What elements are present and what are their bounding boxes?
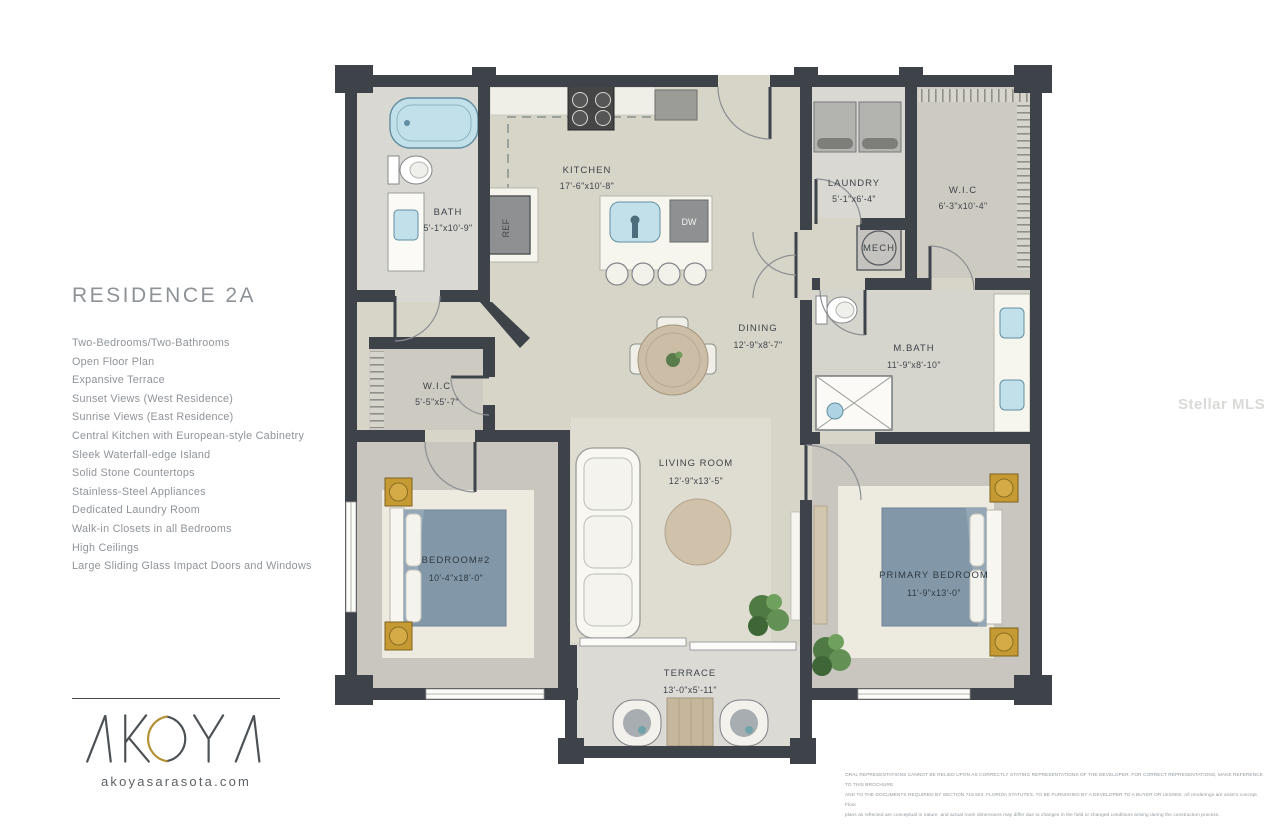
nightstand-icon (385, 478, 412, 506)
room-dims-terrace: 13'-0"x5'-11" (663, 685, 717, 695)
closet-hatch (370, 351, 384, 428)
sliding-glass-door (690, 642, 796, 650)
shower-drain (827, 403, 843, 419)
floor-plan: REF DW MECH (330, 60, 1070, 770)
sofa-cushion (584, 516, 632, 568)
akoya-logo-icon (73, 709, 279, 767)
tub-drain (404, 120, 410, 126)
logo-gold-crescent (148, 717, 167, 762)
pillow (970, 514, 984, 566)
terrace-furniture (613, 698, 768, 746)
room-dims-laundry: 5'-1"x6'-4" (832, 194, 876, 204)
page-title: RESIDENCE 2A (72, 284, 372, 308)
entry-opening (718, 75, 770, 87)
legal-disclaimer: ORAL REPRESENTATIONS CANNOT BE RELIED UP… (845, 770, 1265, 820)
centerpiece-leaf (676, 352, 683, 359)
brand-website: akoyasarasota.com (72, 774, 280, 789)
feature-item: Stainless-Steel Appliances (72, 483, 372, 502)
headboard (390, 508, 404, 628)
disclaimer-line: ORAL REPRESENTATIONS CANNOT BE RELIED UP… (845, 770, 1265, 790)
disclaimer-line: AND TO THE DOCUMENTS REQUIRED BY SECTION… (845, 790, 1265, 810)
residence-info-panel: RESIDENCE 2A Two-Bedrooms/Two-Bathrooms … (72, 284, 372, 576)
room-dims-primary: 11'-9"x13'-0" (907, 588, 961, 598)
coffee-table-icon (665, 499, 731, 565)
nightstand-icon (990, 628, 1018, 656)
closet-hatch (918, 89, 1030, 102)
feature-item: Expansive Terrace (72, 371, 372, 390)
room-dims-mbath: 11'-9"x8'-10" (887, 360, 941, 370)
room-label-dining: DINING (738, 323, 777, 334)
toilet-tank (388, 156, 399, 184)
toilet-bowl (410, 162, 428, 178)
feature-item: Sunrise Views (East Residence) (72, 408, 372, 427)
brand-block: akoyasarasota.com (72, 698, 280, 789)
room-dims-living: 12'-9"x13'-5" (669, 476, 723, 486)
mech-closet: MECH (857, 226, 901, 270)
bedroom2-furniture (382, 478, 534, 658)
vanity-sink-icon (1000, 308, 1024, 338)
vanity-sink-icon (1000, 380, 1024, 410)
toilet-bowl (836, 302, 854, 318)
headboard (986, 510, 1002, 624)
faucet-stem (632, 220, 638, 238)
terrace-table-icon (667, 698, 713, 746)
feature-item: Central Kitchen with European-style Cabi… (72, 427, 372, 446)
vanity-sink-icon (394, 210, 418, 240)
feature-item: Large Sliding Glass Impact Doors and Win… (72, 557, 372, 576)
room-label-primary: PRIMARY BEDROOM (879, 570, 989, 581)
closet-hatch (1017, 102, 1030, 270)
room-dims-wic-left: 5'-5"x5'-7" (415, 397, 459, 407)
room-label-mbath: M.BATH (893, 343, 934, 354)
feature-item: Sunset Views (West Residence) (72, 390, 372, 409)
pocket-door (791, 512, 800, 620)
pillow (406, 514, 421, 566)
sliding-glass-door (580, 638, 686, 646)
room-label-kitchen: KITCHEN (563, 165, 612, 176)
nightstand-icon (385, 622, 412, 650)
bench-icon (814, 506, 827, 624)
dw-label: DW (682, 217, 697, 227)
feature-item: Sleek Waterfall-edge Island (72, 446, 372, 465)
chair-pillow (745, 726, 753, 734)
room-label-laundry: LAUNDRY (828, 178, 880, 189)
feature-item: Solid Stone Countertops (72, 464, 372, 483)
washer-door (817, 138, 853, 149)
room-dims-bedroom2: 10'-4"x18'-0" (429, 573, 483, 583)
feature-item: Two-Bedrooms/Two-Bathrooms (72, 334, 372, 353)
nightstand-icon (990, 474, 1018, 502)
room-dims-wic-right: 6'-3"x10'-4" (938, 201, 987, 211)
feature-item: Walk-in Closets in all Bedrooms (72, 520, 372, 539)
chair-cushion (623, 709, 651, 737)
ref-label: REF (501, 218, 511, 237)
room-dims-dining: 12'-9"x8'-7" (733, 340, 782, 350)
dryer-door (862, 138, 898, 149)
counter-appliance-icon (655, 90, 697, 120)
stellar-mls-watermark: Stellar MLS (1178, 396, 1265, 413)
sofa-cushion (584, 574, 632, 626)
sofa-cushion (584, 458, 632, 510)
room-label-terrace: TERRACE (664, 668, 716, 679)
room-label-bath: BATH (434, 207, 463, 218)
feature-item: Open Floor Plan (72, 353, 372, 372)
chair-cushion (730, 709, 758, 737)
room-label-bedroom2: BEDROOM#2 (422, 555, 491, 566)
room-label-mech: MECH (863, 243, 895, 254)
brand-divider (72, 698, 280, 699)
room-dims-bath: 5'-1"x10'-9" (423, 223, 472, 233)
room-label-living: LIVING ROOM (659, 458, 733, 469)
disclaimer-line: plans as reflected are conceptual in nat… (845, 810, 1265, 820)
chair-pillow (638, 726, 646, 734)
room-label-wic-right: W.I.C (949, 185, 977, 196)
wic-right-floor (917, 87, 1030, 278)
feature-item: High Ceilings (72, 539, 372, 558)
feature-item: Dedicated Laundry Room (72, 501, 372, 520)
room-dims-kitchen: 17'-6"x10'-8" (560, 181, 614, 191)
room-label-wic-left: W.I.C (423, 381, 451, 392)
pillow (406, 570, 421, 622)
